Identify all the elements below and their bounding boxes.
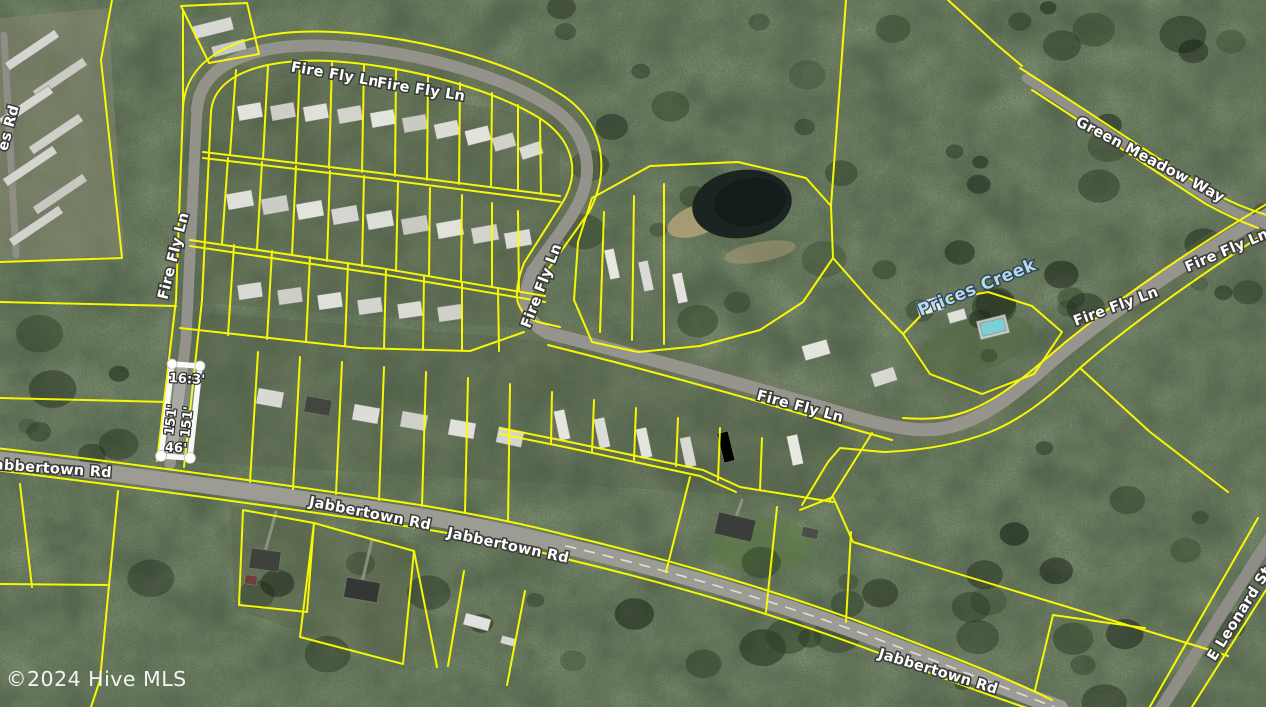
satellite-map-canvas[interactable]: 16:3' 151' 151' 46' Fire Fly Ln Fire Fly…: [0, 0, 1266, 707]
map-view[interactable]: 16:3' 151' 151' 46' Fire Fly Ln Fire Fly…: [0, 0, 1266, 707]
watermark-attribution: ©2024 Hive MLS: [6, 667, 187, 691]
parcel-dim-top: 16:3': [168, 371, 205, 388]
parcel-dim-bottom: 46': [165, 440, 188, 456]
